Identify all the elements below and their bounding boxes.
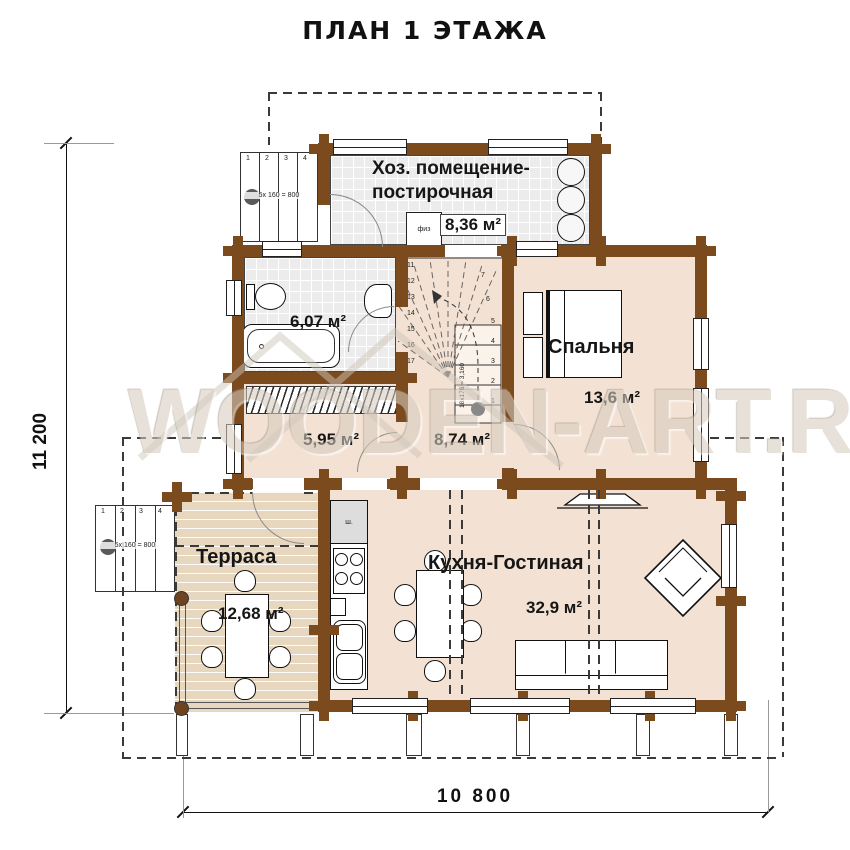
step-number: 4 [303,155,315,163]
witness-line [44,713,174,714]
log-end-cross [397,469,407,499]
porch-left-note: 5х 160 = 800 [97,542,173,549]
window [693,388,709,462]
step-number: 6 [486,296,498,304]
step-number: 5 [491,318,503,326]
log-end-cross [397,363,407,393]
step-number: 4 [158,508,170,516]
dimension-line-bottom [183,812,768,813]
step-number: 1 [491,398,503,406]
log-end-cross [596,236,606,266]
log-end-cross [319,134,329,164]
dimension-height: 11 200 [30,413,52,470]
bedroom-area: 13,6 м² [584,388,640,408]
step-number: 3 [491,358,503,366]
floor-plan-canvas: ПЛАН 1 ЭТАЖА WOODEN-ART.RU 5х 160 = 800 … [0,0,850,850]
step-number: 4 [491,338,503,346]
log-end-cross [726,586,736,616]
log-end-cross [233,236,243,266]
window [470,698,570,714]
log-end-cross [319,691,329,721]
terrace-chair [234,678,256,700]
step-number: 12 [407,278,419,286]
step-number: 3 [284,155,296,163]
witness-line [768,700,769,812]
kitchen-name: Кухня-Гостиная [428,552,584,575]
counter-box [330,598,346,616]
step-number: 7 [481,272,493,280]
washing-machine [557,186,585,214]
dining-chair [394,584,416,606]
roof-outline-dashed [782,437,784,757]
toilet-bowl [255,283,286,310]
stove-burner [350,572,363,585]
roof-outline-dashed [268,92,600,94]
terrace-chair [234,570,256,592]
washing-machine [557,158,585,186]
kitchen-cabinet-label: ш. [345,519,353,526]
terrace-post [174,701,189,716]
kitchen-sink-bowl [336,624,363,651]
dining-table [416,570,464,658]
step-number: 17 [407,358,419,366]
step-number: 13 [407,294,419,302]
step-number: 1 [101,508,113,516]
utility-equipment-box: физ [406,212,442,246]
bedroom-name: Спальня [548,336,634,359]
terrace-chair [201,646,223,668]
terrace-railing [179,598,180,710]
kitchen-cabinet: ш. [330,500,368,544]
log-end-cross [172,482,182,512]
window [262,241,302,257]
terrace-railing [180,708,320,709]
window [226,280,242,316]
toilet-tank [246,284,255,310]
window [721,524,737,588]
step-number: 11 [407,262,419,270]
window [516,241,558,257]
log-end-cross [319,615,329,645]
log-end-cross [233,363,243,393]
terrace-chair [269,646,291,668]
page-title: ПЛАН 1 ЭТАЖА [0,16,850,45]
utility-room-area: 8,36 м² [440,214,506,236]
log-end-cross [696,236,706,266]
dressing-area: 5,95 м² [303,430,359,450]
terrace-name: Терраса [196,546,276,569]
step-number: 14 [407,310,419,318]
nightstand [523,292,543,335]
terrace-area: 12,68 м² [218,604,284,624]
terrace-post [174,591,189,606]
utility-box-label: физ [418,226,431,233]
log-end-cross [507,469,517,499]
kitchen-sink-bowl [336,653,363,680]
log-end-cross [591,134,601,164]
kitchen-area: 32,9 м² [526,598,582,618]
window [226,424,242,474]
roof-outline-dashed [122,437,124,757]
witness-line [44,143,114,144]
step-number: 15 [407,326,419,334]
window [488,139,568,155]
log-end-cross [726,481,736,511]
step-number: 1 [246,155,258,163]
stove-burner [335,553,348,566]
foundation-post [300,714,314,756]
bathroom-area: 6,07 м² [290,312,346,332]
wall-segment [502,245,514,422]
log-end-cross [696,469,706,499]
wall-segment [318,490,330,712]
hall-area: 8,74 м² [434,430,490,450]
washing-machine [557,214,585,242]
step-number: 2 [491,378,503,386]
window [352,698,428,714]
stove-burner [350,553,363,566]
step-number: 2 [120,508,132,516]
dining-chair [394,620,416,642]
log-end-cross [319,469,329,499]
bed [546,290,622,378]
roof-projection-line [588,490,590,700]
armchair [643,538,723,618]
window [333,139,407,155]
sofa [515,640,668,690]
log-end-cross [726,691,736,721]
step-number: 3 [139,508,151,516]
stairs-note: 18х176 = 3,160 [459,363,466,408]
step-number: 2 [265,155,277,163]
stove-burner [335,572,348,585]
roof-outline-dashed [122,437,232,439]
dimension-width: 10 800 [400,786,550,808]
bathtub-drain [259,344,264,349]
window [693,318,709,370]
utility-room-name-line2: постирочная [372,182,493,204]
roof-outline-dashed [304,492,318,494]
terrace-railing [185,598,186,710]
nightstand [523,337,543,378]
utility-room-name-line1: Хоз. помещение- [372,158,530,180]
roof-projection-line [598,490,600,700]
roof-outline-dashed [268,92,270,145]
dining-chair [424,660,446,682]
roof-projection-line [461,490,463,700]
wall-segment [232,372,402,384]
foundation-post [176,714,188,756]
dimension-line-left [66,143,67,713]
roof-outline-dashed [122,757,782,759]
wardrobe-hangers [246,386,398,414]
porch-top-note: 5х 160 = 800 [242,192,316,199]
step-number: 16 [407,342,419,350]
terrace-railing [180,702,320,703]
roof-projection-line [449,490,451,700]
window [610,698,696,714]
